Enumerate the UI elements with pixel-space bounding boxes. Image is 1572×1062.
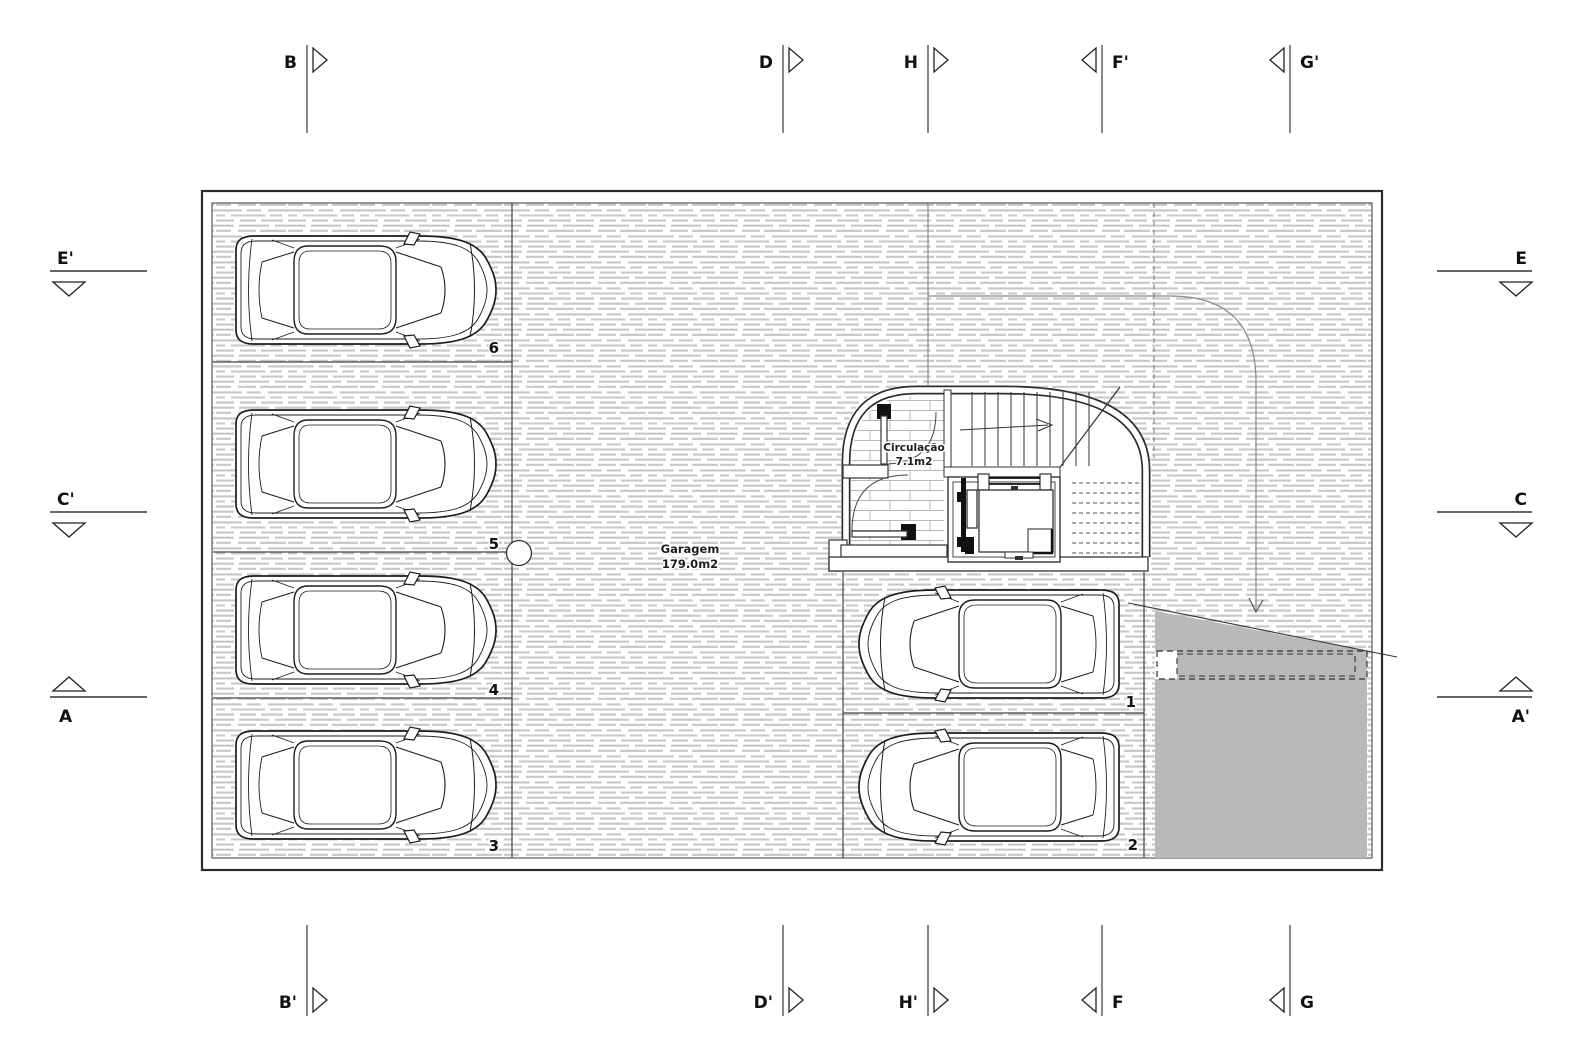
section-marker-D: D	[759, 45, 803, 133]
rail-shoe	[965, 537, 974, 554]
counterweight	[1028, 529, 1052, 553]
garage-room-name: Garagem	[661, 542, 720, 556]
ramp-notch	[1155, 651, 1177, 679]
section-marker-E-prime: E'	[50, 249, 147, 296]
car-top-view-space-2	[859, 729, 1119, 845]
lobby-bottom-wall	[841, 545, 947, 557]
section-marker-B: B	[284, 45, 327, 133]
circulation-room-area: 7.1m2	[896, 456, 933, 468]
marker-label-E: E	[1515, 249, 1527, 269]
space-number-5: 5	[489, 535, 499, 553]
space-number-2: 2	[1128, 836, 1138, 854]
section-marker-B-prime: B'	[279, 925, 327, 1016]
space-number-1: 1	[1126, 693, 1136, 711]
floor-plan-sheet: Circulação 7.1m2 6 5 4 3 1 2 Garagem 179…	[0, 0, 1572, 1058]
floor-plan-drawing: Circulação 7.1m2 6 5 4 3 1 2 Garagem 179…	[0, 0, 1572, 1058]
rail-clip-top	[957, 492, 961, 502]
car-top-view-space-5	[236, 406, 496, 522]
marker-label-D: D	[759, 53, 773, 73]
marker-label-F-prime: F'	[1112, 53, 1129, 73]
section-marker-H: H	[904, 45, 948, 133]
section-marker-A: A	[50, 677, 147, 727]
section-markers-left: E' C' A	[50, 249, 147, 727]
section-marker-H-prime: H'	[899, 925, 948, 1016]
section-marker-G-prime: G'	[1270, 45, 1319, 133]
marker-label-G-prime: G'	[1300, 53, 1319, 73]
cab-sill-tick	[1015, 556, 1023, 560]
car-top-view-space-6	[236, 232, 496, 348]
section-marker-C: C	[1437, 490, 1532, 537]
door-top-leaf	[881, 416, 887, 464]
elevator	[944, 467, 1060, 562]
section-marker-D-prime: D'	[754, 925, 803, 1016]
section-markers-right: E C A'	[1437, 249, 1532, 727]
marker-label-H-prime: H'	[899, 993, 918, 1013]
section-markers-top: B D H F' G'	[284, 45, 1319, 133]
door-bracket-right	[1040, 474, 1051, 490]
section-marker-C-prime: C'	[50, 490, 147, 537]
circulation-room-name: Circulação	[883, 442, 944, 454]
marker-label-G: G	[1300, 993, 1314, 1013]
marker-label-A-prime: A'	[1512, 707, 1530, 727]
marker-label-F: F	[1112, 993, 1124, 1013]
section-markers-bottom: B' D' H' F G	[279, 925, 1314, 1016]
section-marker-G: G	[1270, 925, 1314, 1016]
car-top-view-space-3	[236, 727, 496, 843]
section-marker-F-prime: F'	[1082, 45, 1129, 133]
space-number-4: 4	[489, 681, 499, 699]
section-marker-A-prime: A'	[1437, 677, 1532, 727]
marker-label-E-prime: E'	[57, 249, 74, 269]
garage-room-area: 179.0m2	[662, 557, 718, 571]
rail-clip-bottom	[957, 537, 961, 547]
space-number-3: 3	[489, 837, 499, 855]
marker-label-D-prime: D'	[754, 993, 773, 1013]
lobby-wall-stub	[843, 465, 888, 478]
section-marker-E: E	[1437, 249, 1532, 296]
column-circle	[507, 541, 532, 566]
section-marker-F: F	[1082, 925, 1124, 1016]
space-number-6: 6	[489, 339, 499, 357]
stair-left-wall	[944, 390, 951, 467]
ramp-surface	[1155, 611, 1367, 858]
door-bracket-left	[978, 474, 989, 490]
car-top-view-space-1	[859, 586, 1119, 702]
marker-label-B-prime: B'	[279, 993, 297, 1013]
stair-core: Circulação 7.1m2	[829, 385, 1151, 572]
door-bottom-leaf	[852, 531, 907, 537]
marker-label-C-prime: C'	[57, 490, 75, 510]
rail-slider	[967, 490, 977, 528]
marker-label-C: C	[1515, 490, 1527, 510]
car-top-view-space-4	[236, 572, 496, 688]
marker-label-A: A	[59, 707, 73, 727]
marker-label-B: B	[284, 53, 297, 73]
marker-label-H: H	[904, 53, 918, 73]
